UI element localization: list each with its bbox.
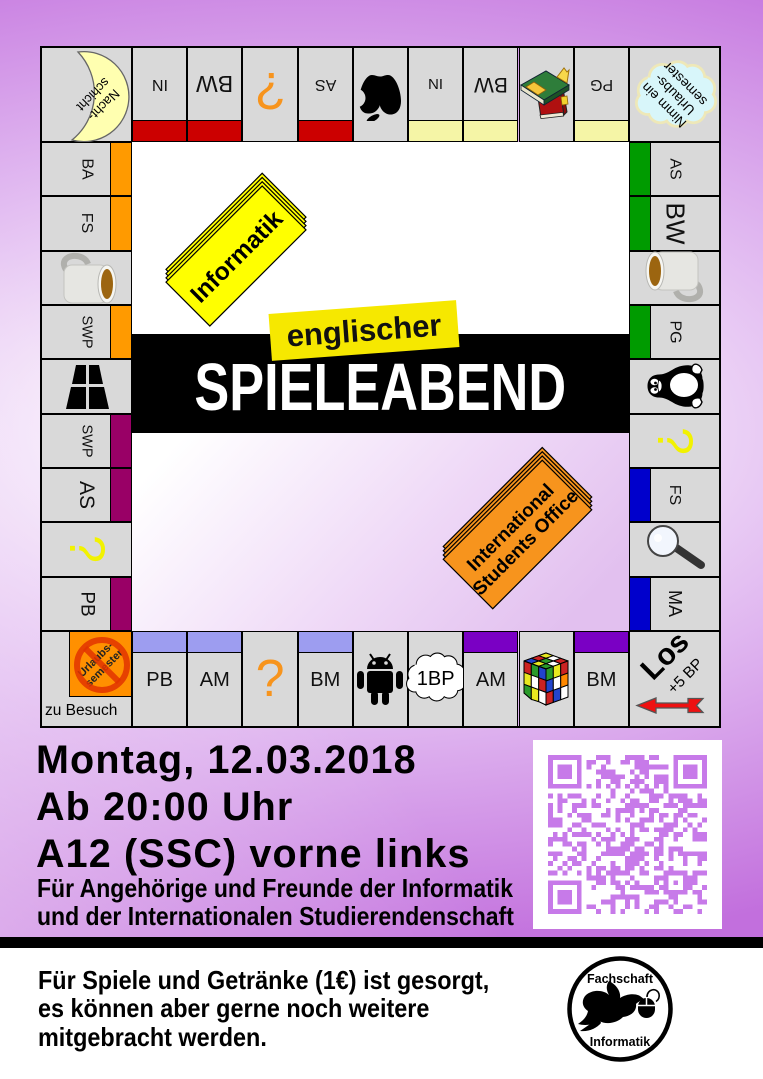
svg-text:Informatik: Informatik [590,1035,650,1049]
svg-text:Fachschaft: Fachschaft [587,972,654,986]
